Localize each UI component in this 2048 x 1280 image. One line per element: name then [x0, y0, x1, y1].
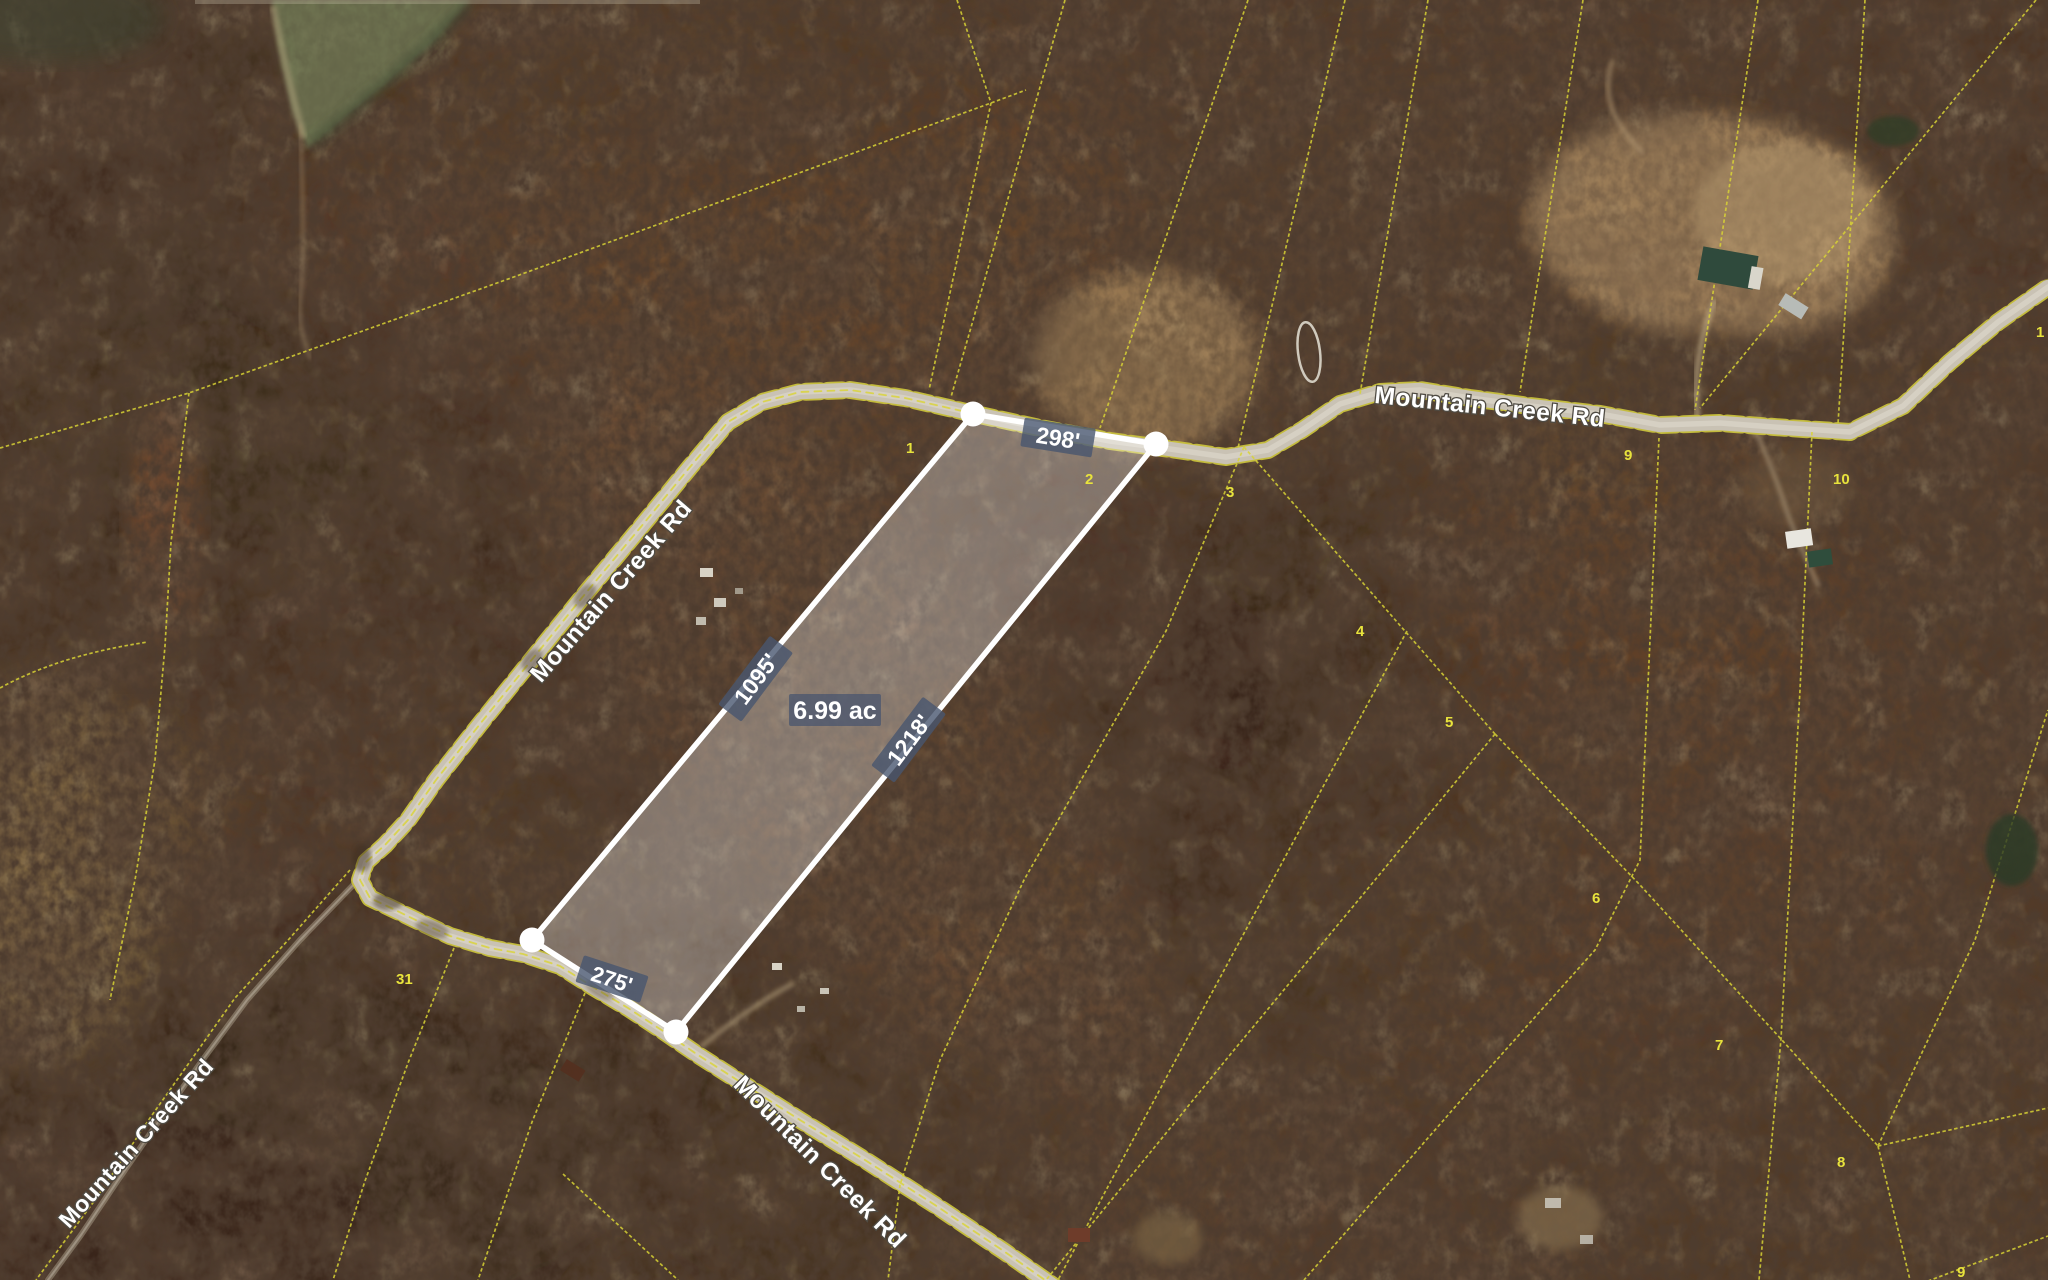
svg-text:10: 10 [1833, 471, 1850, 488]
svg-text:3: 3 [1226, 484, 1234, 501]
svg-text:6.99 ac: 6.99 ac [793, 697, 877, 725]
svg-text:8: 8 [1837, 1154, 1845, 1171]
svg-text:5: 5 [1445, 714, 1453, 731]
svg-text:1: 1 [2036, 324, 2044, 341]
svg-text:7: 7 [1715, 1037, 1723, 1054]
svg-text:31: 31 [396, 971, 413, 988]
svg-text:1: 1 [906, 440, 914, 457]
svg-text:6: 6 [1592, 890, 1600, 907]
svg-text:4: 4 [1356, 623, 1365, 640]
svg-text:2: 2 [1085, 471, 1093, 488]
svg-text:9: 9 [1957, 1264, 1965, 1280]
svg-text:9: 9 [1624, 447, 1632, 464]
